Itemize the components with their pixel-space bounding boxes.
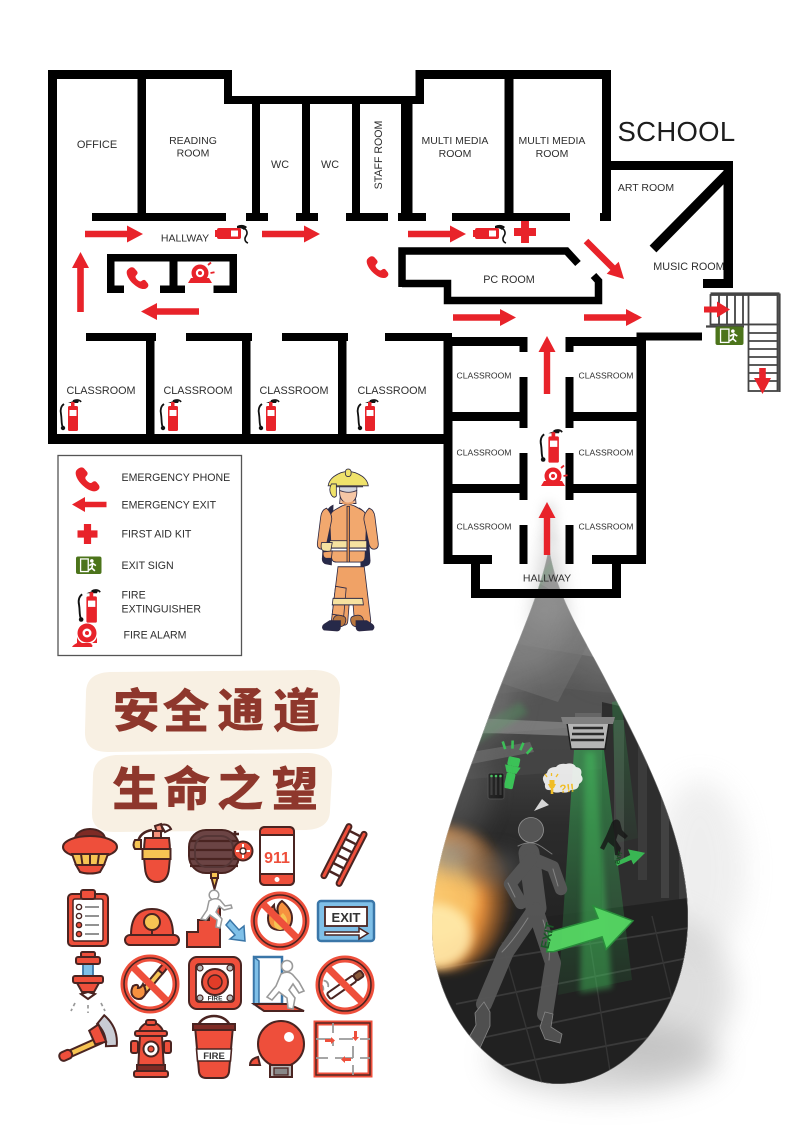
svg-text:HALLWAY: HALLWAY: [161, 233, 209, 245]
svg-text:ART ROOM: ART ROOM: [618, 182, 674, 194]
svg-text:HALLWAY: HALLWAY: [523, 573, 571, 585]
svg-text:CLASSROOM: CLASSROOM: [579, 448, 634, 458]
svg-text:ROOM: ROOM: [439, 148, 472, 160]
svg-text:CLASSROOM: CLASSROOM: [457, 448, 512, 458]
svg-text:CLASSROOM: CLASSROOM: [164, 385, 233, 397]
svg-text:MULTI MEDIA: MULTI MEDIA: [422, 135, 489, 147]
svg-text:SCHOOL: SCHOOL: [618, 116, 736, 147]
svg-text:CLASSROOM: CLASSROOM: [260, 385, 329, 397]
svg-text:EXIT: EXIT: [332, 910, 361, 925]
svg-text:CLASSROOM: CLASSROOM: [579, 522, 634, 532]
svg-text:EMERGENCY EXIT: EMERGENCY EXIT: [122, 500, 217, 512]
svg-text:CLASSROOM: CLASSROOM: [457, 522, 512, 532]
svg-text:STAFF ROOM: STAFF ROOM: [373, 121, 385, 190]
svg-text:911: 911: [264, 850, 290, 867]
svg-text:?!!: ?!!: [559, 783, 575, 796]
svg-text:EXTINGUISHER: EXTINGUISHER: [122, 604, 202, 616]
svg-text:CLASSROOM: CLASSROOM: [67, 385, 136, 397]
svg-text:FIRE ALARM: FIRE ALARM: [124, 630, 187, 642]
svg-text:FIRST AID KIT: FIRST AID KIT: [122, 529, 192, 541]
svg-text:CLASSROOM: CLASSROOM: [579, 371, 634, 381]
svg-text:PC ROOM: PC ROOM: [483, 274, 535, 286]
svg-text:CLASSROOM: CLASSROOM: [457, 371, 512, 381]
svg-text:READING: READING: [169, 135, 217, 147]
svg-text:CLASSROOM: CLASSROOM: [358, 385, 427, 397]
svg-text:FIRE: FIRE: [122, 590, 146, 602]
svg-text:OFFICE: OFFICE: [77, 139, 117, 151]
svg-text:EXIT SIGN: EXIT SIGN: [122, 560, 174, 572]
svg-text:ROOM: ROOM: [536, 148, 569, 160]
svg-text:ROOM: ROOM: [177, 148, 210, 160]
svg-text:FIRE: FIRE: [208, 996, 223, 1003]
svg-text:MUSIC ROOM: MUSIC ROOM: [653, 261, 724, 273]
svg-text:EMERGENCY PHONE: EMERGENCY PHONE: [122, 472, 231, 484]
svg-text:WC: WC: [271, 159, 289, 171]
svg-text:WC: WC: [321, 159, 339, 171]
svg-text:FIRE: FIRE: [203, 1051, 225, 1062]
svg-text:MULTI MEDIA: MULTI MEDIA: [519, 135, 586, 147]
